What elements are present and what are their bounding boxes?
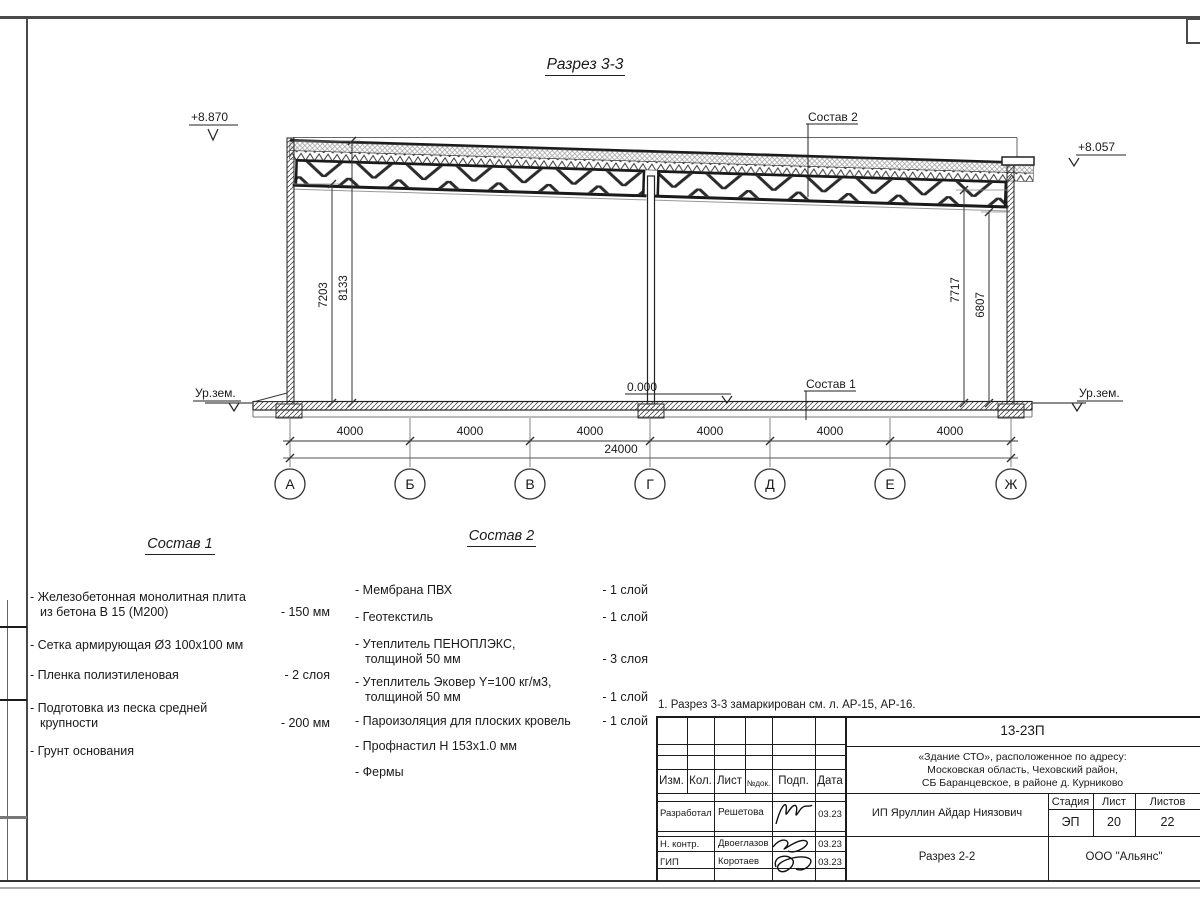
elevation-floor-value: 0.000 — [627, 380, 657, 394]
col-kol: Кол. — [687, 775, 714, 787]
col-izm: Изм. — [656, 775, 687, 787]
span-dim: 4000 — [817, 424, 844, 438]
list-item: - Сетка армирующая Ø3 100х100 мм — [30, 638, 330, 654]
titleblock-border — [656, 716, 658, 881]
titleblock-line — [1048, 809, 1200, 810]
roof-package — [289, 139, 1034, 212]
elevation-right-top-value: +8.057 — [1078, 140, 1115, 154]
axis-label-v: В — [525, 476, 534, 492]
ground-level-right: Ур.зем. — [1072, 386, 1123, 411]
dim-7717: 7717 — [950, 277, 962, 303]
wall-left — [287, 138, 294, 404]
list-item: - Утеплитель Эковер Y=100 кг/м3, толщино… — [355, 675, 648, 706]
col-podp: Подп. — [772, 775, 815, 787]
col-list: Лист — [714, 775, 745, 787]
list-item: - Геотекстиль - 1 слой — [355, 610, 648, 626]
elevation-floor: 0.000 — [625, 380, 732, 403]
sheets-label: Листов — [1135, 796, 1200, 808]
total-dim: 24000 — [604, 442, 638, 456]
row2-role: Н. контр. — [660, 839, 714, 850]
row2-date: 03.23 — [815, 839, 845, 850]
section-drawing: +8.870 +8.057 0.000 Ур.зем. Ур.зем. Сост… — [0, 0, 1200, 560]
column-middle — [648, 176, 655, 404]
leader-sostav2-label: Состав 2 — [808, 110, 858, 124]
axis-label-a: А — [285, 476, 295, 492]
sostav1-title: Состав 1 — [30, 537, 330, 555]
floor-slab — [253, 393, 1032, 418]
project-address-line3: СБ Баранцевское, в районе д. Курниково — [845, 777, 1200, 789]
ground-level-left: Ур.зем. — [193, 386, 241, 411]
axis-label-b: Б — [405, 476, 414, 492]
wall-right — [1007, 165, 1014, 404]
row1-role: Разработал — [660, 808, 714, 819]
titleblock-line — [656, 831, 845, 832]
list-item: - Железобетонная монолитная плита из бет… — [30, 590, 330, 621]
axis-label-g: Г — [646, 476, 654, 492]
row1-date: 03.23 — [815, 809, 845, 820]
titleblock-line — [656, 769, 845, 770]
sheet-note: 1. Разрез 3-3 замаркирован см. л. АР-15,… — [658, 699, 916, 711]
sostav1-list: Состав 1 - Железобетонная монолитная пли… — [30, 537, 330, 759]
list-item: - Фермы — [355, 765, 648, 781]
elevation-left-top: +8.870 — [189, 110, 238, 140]
dimension-lines — [283, 437, 1018, 462]
list-item: - Пленка полиэтиленовая - 2 слоя — [30, 668, 330, 684]
row3-role: ГИП — [660, 857, 714, 868]
sheet-name: Разрез 2-2 — [847, 851, 1047, 863]
project-address-line1: «Здание СТО», расположенное по адресу: — [845, 751, 1200, 763]
frame-left-divider — [0, 626, 27, 628]
titleblock-line — [656, 793, 1200, 794]
dim-7203: 7203 — [318, 282, 330, 308]
leader-sostav1: Состав 1 — [804, 377, 856, 420]
drawing-sheet: Разрез 3-3 — [0, 0, 1200, 900]
list-item: - Утеплитель ПЕНОПЛЭКС, толщиной 50 мм -… — [355, 637, 648, 668]
sostav2-title: Состав 2 — [355, 529, 648, 547]
titleblock-line — [714, 717, 715, 881]
sheet-shadow-line — [0, 887, 1200, 889]
titleblock-line — [656, 836, 1200, 837]
signature-controller-gip — [768, 833, 818, 879]
frame-bottom-line — [0, 880, 1200, 883]
titleblock-border — [656, 716, 1200, 718]
axis-label-d: Д — [765, 476, 775, 492]
span-dim: 4000 — [937, 424, 964, 438]
signature-razrabotal — [772, 796, 816, 832]
row2-name: Двоеглазов — [718, 838, 772, 849]
axis-label-e: Е — [885, 476, 894, 492]
titleblock-line — [656, 755, 845, 756]
span-dim: 4000 — [577, 424, 604, 438]
list-item: - Профнастил Н 153х1.0 мм — [355, 739, 648, 755]
elevation-right-top: +8.057 — [1069, 140, 1126, 166]
row1-name: Решетова — [718, 807, 772, 818]
titleblock-line — [845, 746, 1200, 747]
row3-date: 03.23 — [815, 857, 845, 868]
frame-left-inner-line — [7, 600, 8, 881]
project-address-line2: Московская область, Чеховский район, — [845, 764, 1200, 776]
span-dim: 4000 — [337, 424, 364, 438]
eave-cap-right — [1002, 157, 1034, 165]
span-dim: 4000 — [457, 424, 484, 438]
stage-value: ЭП — [1048, 815, 1093, 829]
dim-6807: 6807 — [975, 292, 987, 318]
list-item: - Мембрана ПВХ - 1 слой — [355, 583, 648, 599]
sheet-label: Лист — [1093, 796, 1135, 808]
client-name: ИП Яруллин Айдар Ниязович — [847, 807, 1047, 819]
titleblock-line — [656, 801, 845, 802]
frame-left-divider — [0, 699, 27, 701]
list-item: - Подготовка из песка средней крупности … — [30, 701, 330, 732]
dim-8133: 8133 — [338, 275, 350, 301]
list-item: - Грунт основания — [30, 744, 330, 760]
ground-level-right-label: Ур.зем. — [1079, 386, 1120, 400]
frame-left-divider — [0, 816, 27, 819]
span-dim: 4000 — [697, 424, 724, 438]
sostav2-list: Состав 2 - Мембрана ПВХ - 1 слой - Геоте… — [355, 529, 648, 780]
col-data: Дата — [815, 775, 845, 787]
doc-number: 13-23П — [845, 723, 1200, 738]
sheet-number: 20 — [1093, 815, 1135, 829]
ground-level-left-label: Ур.зем. — [195, 386, 236, 400]
company-name: ООО "Альянс" — [1048, 851, 1200, 863]
list-item: - Пароизоляция для плоских кровель - 1 с… — [355, 714, 648, 730]
stage-label: Стадия — [1048, 796, 1093, 808]
sheets-total: 22 — [1135, 815, 1200, 829]
leader-sostav1-label: Состав 1 — [806, 377, 856, 391]
axis-bubbles: А Б В Г Д Е Ж — [275, 469, 1026, 499]
row3-name: Коротаев — [718, 856, 772, 867]
elevation-left-top-value: +8.870 — [191, 110, 228, 124]
col-ndok: №док. — [745, 779, 772, 788]
axis-extension-lines — [290, 418, 1011, 467]
axis-label-zh: Ж — [1005, 476, 1018, 492]
titleblock-line — [656, 744, 845, 745]
